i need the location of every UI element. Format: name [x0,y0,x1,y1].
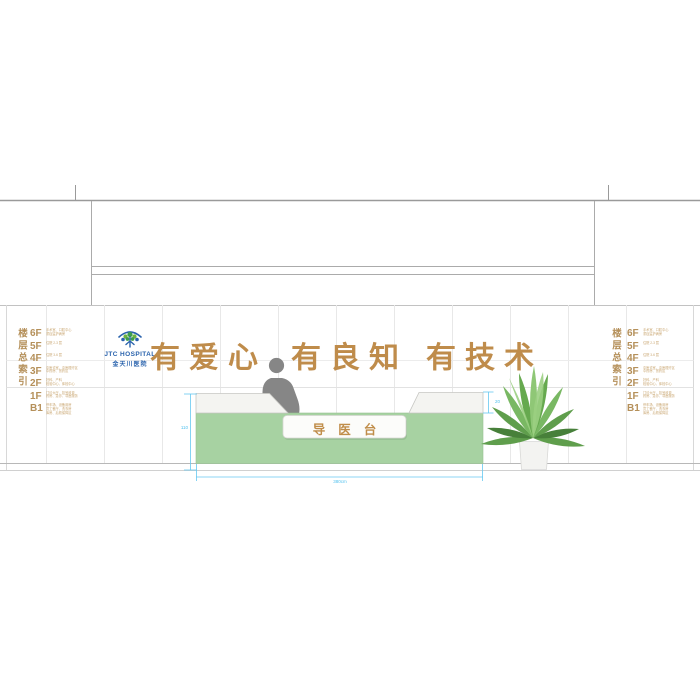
floor-label: B1 [30,403,43,414]
floor-row-b1-right: B1 停车场、设备用房员工餐厅、洗衣房库房、后勤保障区 [627,403,700,415]
floor-desc: 住院 2-3 层 [643,342,695,346]
floor-label: 5F [627,341,639,352]
floor-label: 5F [30,341,42,352]
floor-label: 3F [627,366,639,377]
dimension-lip-label: 20 [495,399,500,404]
floor-row-3f-right: 3F 中医诊室、中医理疗区中药房、煎药区 [627,366,700,378]
floor-row-4f-right: 4F 住院 3-6 层 [627,353,700,365]
dimension-width-label: 380cm [320,479,360,484]
slogan-part-2: 有良知 [291,333,408,376]
floor-desc: 妇科、产科检验中心、体检中心 [46,379,98,387]
floor-label: 6F [30,328,42,339]
floor-label: 4F [30,353,42,364]
floor-row-2f-right: 2F 妇科、产科检验中心、体检中心 [627,378,700,390]
floor-row-6f-left: 6F 手术室、口腔中心重症监护病房 [30,328,110,340]
floor-lines [0,464,700,471]
floor-desc: 住院 2-3 层 [46,342,98,346]
floor-desc: 中医诊室、中医理疗区中药房、煎药区 [46,367,98,375]
floor-row-5f-left: 5F 住院 2-3 层 [30,341,110,353]
floor-row-6f-right: 6F 手术室、口腔中心重症监护病房 [627,328,700,340]
plant-pot [520,442,549,470]
dimension-height-label: 110 [176,425,188,430]
slogan-part-3: 有技术 [426,333,543,376]
floor-row-5f-right: 5F 住院 2-3 层 [627,341,700,353]
plant-fronds [481,366,585,447]
reception-desk-elevation-drawing: 楼层总索引 6F 手术室、口腔中心重症监护病房 5F 住院 2-3 层 4F 住… [0,0,700,700]
floor-row-b1-left: B1 停车场、设备用房员工餐厅、洗衣房库房、后勤保障区 [30,403,110,415]
floor-label: 4F [627,353,639,364]
floor-label: 2F [30,378,42,389]
floor-label: 1F [30,391,42,402]
floor-label: B1 [627,403,640,414]
floor-label: 2F [627,378,639,389]
desk-counter-right [409,393,483,414]
floor-row-4f-left: 4F 住院 3-6 层 [30,353,110,365]
floor-desc: 住院 3-6 层 [643,354,695,358]
floor-index-title-left: 楼层总索引 [14,328,28,388]
floor-index-title-right: 楼层总索引 [608,328,622,388]
slogan-part-1: 有爱心 [150,333,267,376]
floor-desc: 手术室、口腔中心重症监护病房 [46,329,98,337]
floor-desc: 妇科、产科检验中心、体检中心 [643,379,695,387]
floor-desc: 停车场、设备用房员工餐厅、洗衣房库房、后勤保障区 [643,404,695,415]
floor-desc: 停车场、设备用房员工餐厅、洗衣房库房、后勤保障区 [46,404,98,415]
floor-row-2f-left: 2F 妇科、产科检验中心、体检中心 [30,378,110,390]
floor-row-1f-right: 1F 门诊大厅、挂号收费药房、急诊、导医服务 [627,391,700,403]
floor-row-1f-left: 1F 门诊大厅、挂号收费药房、急诊、导医服务 [30,391,110,403]
ceiling-lines [0,185,700,306]
floor-label: 1F [627,391,639,402]
floor-desc: 住院 3-6 层 [46,354,98,358]
floor-desc: 门诊大厅、挂号收费药房、急诊、导医服务 [643,392,695,400]
floor-desc: 手术室、口腔中心重症监护病房 [643,329,695,337]
floor-row-3f-left: 3F 中医诊室、中医理疗区中药房、煎药区 [30,366,110,378]
floor-label: 3F [30,366,42,377]
plant-icon [481,366,585,470]
tree-logo-icon [116,326,144,351]
floor-label: 6F [627,328,639,339]
floor-desc: 中医诊室、中医理疗区中药房、煎药区 [643,367,695,375]
desk-sign-label: 导医台 [283,419,406,438]
floor-desc: 门诊大厅、挂号收费药房、急诊、导医服务 [46,392,98,400]
